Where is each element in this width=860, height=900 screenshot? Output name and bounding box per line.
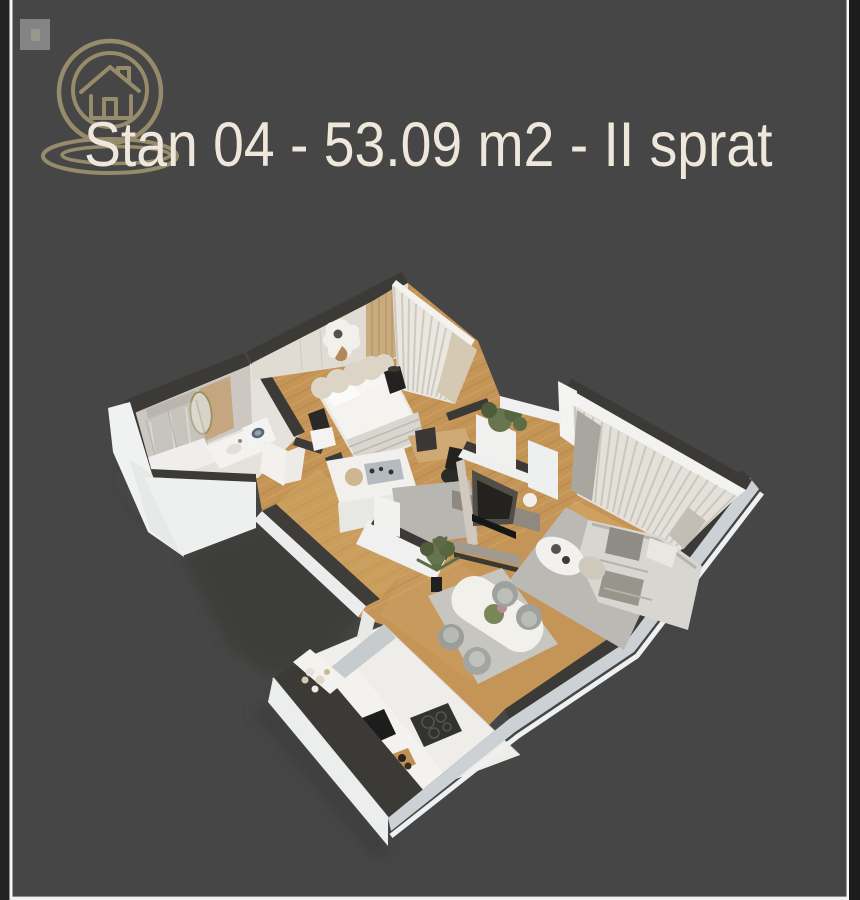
svg-text:Stan 04 - 53.09 m2 - II sprat: Stan 04 - 53.09 m2 - II sprat — [84, 109, 773, 180]
